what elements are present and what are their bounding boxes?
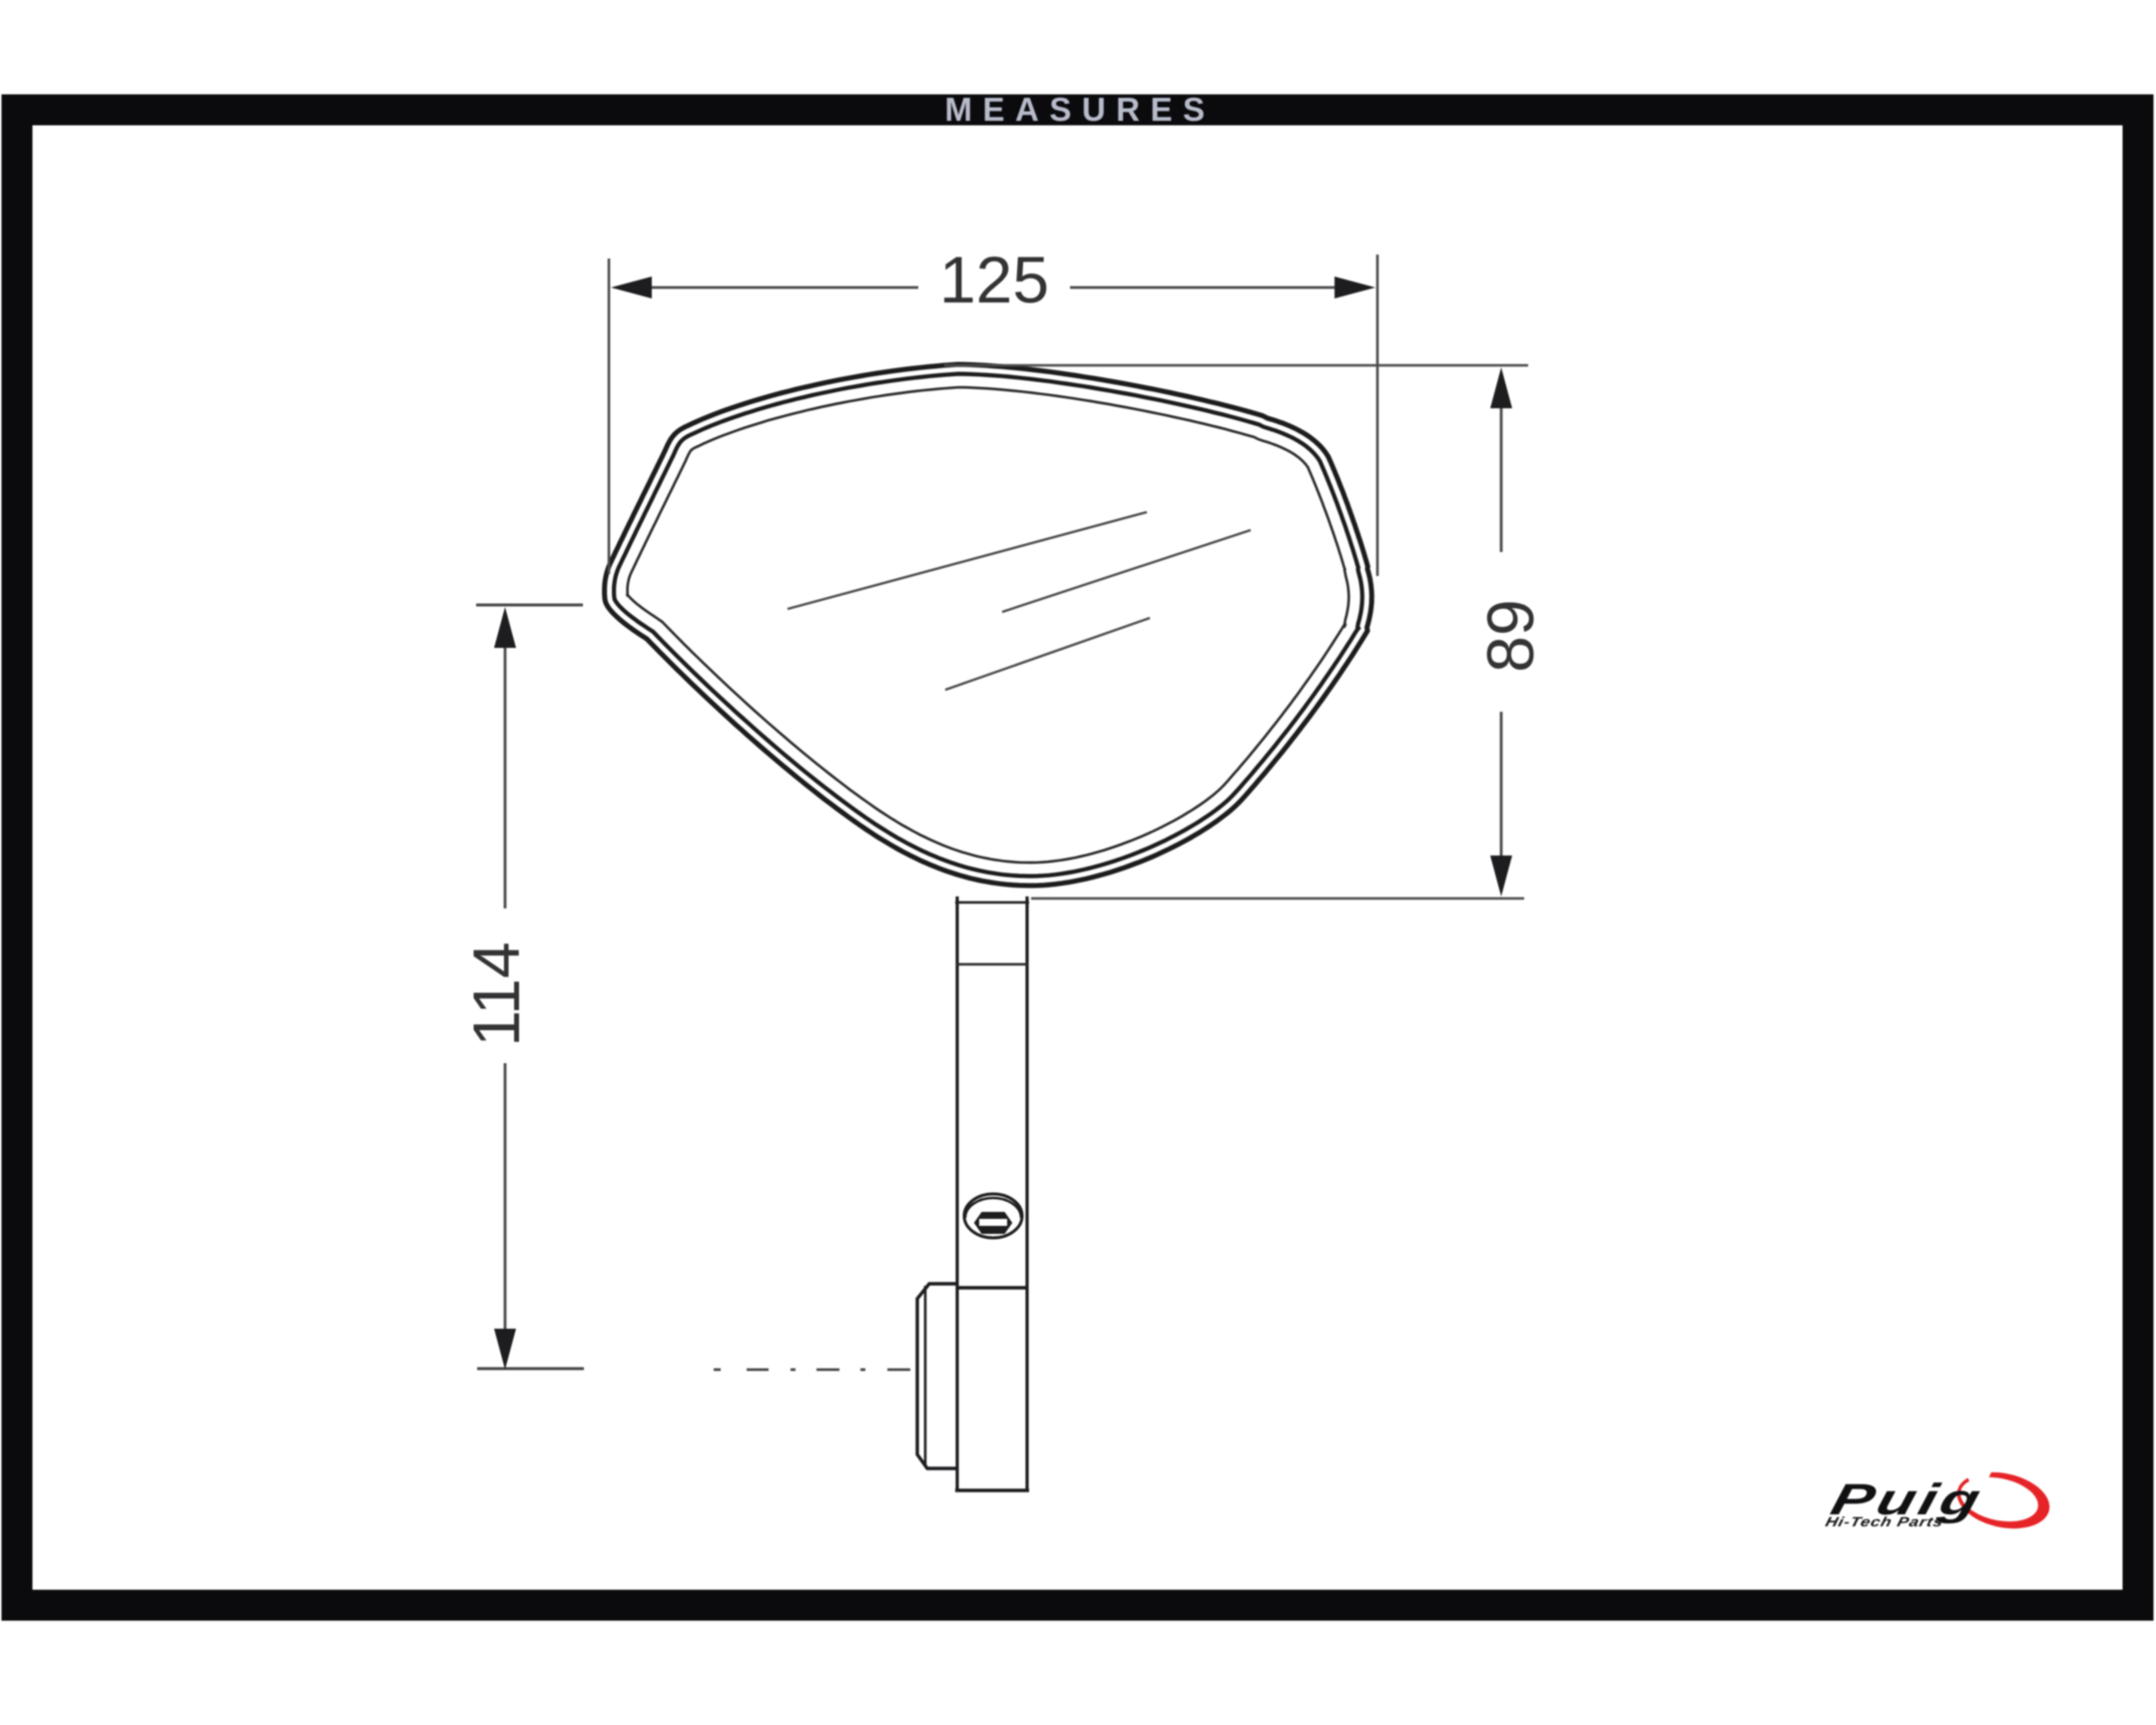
svg-text:Hi-Tech Parts: Hi-Tech Parts: [1824, 1515, 1945, 1530]
svg-text:125: 125: [939, 243, 1049, 316]
svg-text:MEASURES: MEASURES: [944, 91, 1215, 128]
svg-text:89: 89: [1473, 599, 1547, 672]
svg-text:114: 114: [459, 941, 533, 1046]
